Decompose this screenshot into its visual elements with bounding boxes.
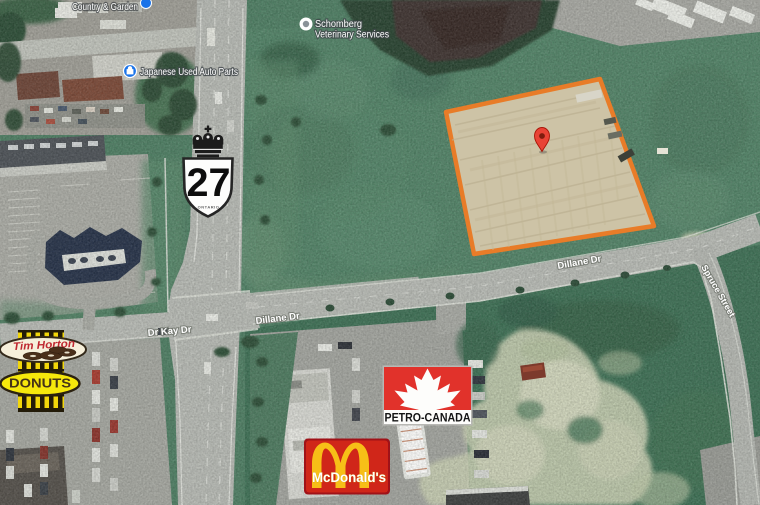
svg-text:Veterinary Services: Veterinary Services bbox=[315, 30, 389, 41]
svg-text:PETRO-CANADA: PETRO-CANADA bbox=[385, 411, 471, 425]
svg-text:Country & Garden: Country & Garden bbox=[72, 1, 138, 13]
svg-text:DONUTS: DONUTS bbox=[9, 376, 71, 391]
svg-text:ONTARIO: ONTARIO bbox=[198, 205, 220, 210]
svg-text:Schomberg: Schomberg bbox=[315, 19, 362, 30]
svg-text:27: 27 bbox=[187, 161, 231, 205]
svg-text:Japanese Used Auto Parts: Japanese Used Auto Parts bbox=[140, 67, 238, 78]
svg-text:McDonald's: McDonald's bbox=[312, 470, 386, 485]
